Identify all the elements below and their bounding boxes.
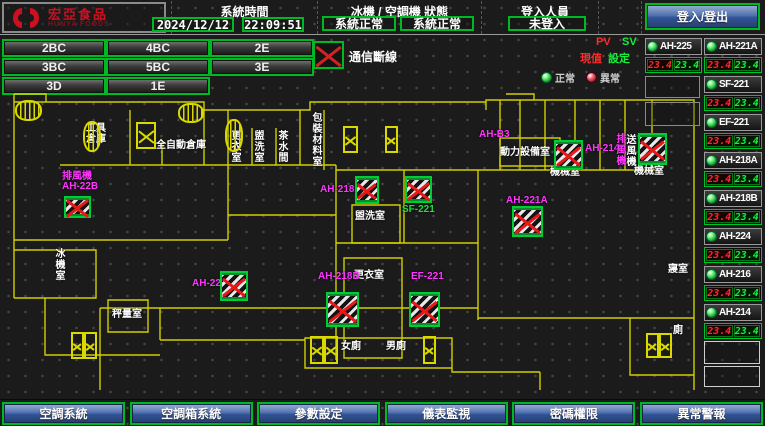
room-label: 機械室 (634, 166, 664, 177)
unit-sv-value: 23.4 (734, 287, 761, 299)
device-label-AH-218B: AH-218B (318, 272, 360, 282)
unit-status-lamp-icon (706, 307, 717, 318)
brand-name-en: HUNYA FOODS (48, 21, 110, 28)
legend-normal: 正常 (541, 70, 575, 85)
elevator-shaft-icon (646, 333, 659, 358)
unit-EF-221[interactable]: EF-221 (704, 114, 762, 131)
divider (317, 1, 318, 34)
ahu-commfail-icon-SF-221[interactable] (405, 176, 432, 203)
unit-name-label: AH-214 (719, 307, 750, 318)
floor-button-label: 4BC (108, 41, 208, 55)
floor-button-label: 1E (108, 79, 208, 93)
footer-button-密碼權限[interactable]: 密碼權限 (512, 402, 635, 425)
unit-AH-221A[interactable]: AH-221A (704, 38, 762, 55)
unit-name-label: SF-221 (719, 79, 749, 90)
device-label-AH-22B: 排風機 AH-22B (62, 172, 98, 192)
stairs-icon (15, 100, 42, 121)
divider (641, 1, 642, 34)
footer-button-label: 空調箱系統 (132, 404, 251, 423)
floor-button-3E[interactable]: 3E (210, 58, 314, 76)
unit-pv-value: 23.4 (706, 97, 733, 109)
elevator-shaft-icon (423, 336, 436, 364)
device-label-AH-221A: AH-221A (506, 196, 548, 206)
room-label: 冰機室 (53, 248, 63, 281)
unit-values-AH-224: 23.423.4 (704, 247, 762, 263)
floor-button-1E[interactable]: 1E (106, 77, 210, 95)
unit-sv-value: 23.4 (734, 59, 761, 71)
unit-name-label: AH-218A (719, 155, 757, 166)
pv-caption: 現值 (580, 50, 602, 66)
system-time-value: 22:09:51 (242, 17, 304, 32)
room-label: 廁 (673, 325, 683, 336)
room-label: 茶水間 (276, 130, 286, 163)
floor-button-label: 3D (4, 79, 104, 93)
unit-name-label: AH-224 (719, 231, 750, 242)
unit-status-lamp-icon (706, 193, 717, 204)
unit-AH-218B[interactable]: AH-218B (704, 190, 762, 207)
floor-button-label: 3BC (4, 60, 104, 74)
unit-sv-value: 23.4 (734, 325, 761, 337)
room-label: 盥洗室 (355, 211, 385, 222)
unit-SF-221[interactable]: SF-221 (704, 76, 762, 93)
unit-pv-value: 23.4 (706, 325, 733, 337)
unit-pv-value: 23.4 (706, 287, 733, 299)
divider (481, 1, 482, 34)
stairs-icon (83, 121, 101, 152)
unit-values-AH-218A: 23.423.4 (704, 171, 762, 187)
elevator-shaft-icon (324, 336, 338, 364)
footer-nav: 空調系統空調箱系統參數設定儀表監視密碼權限異常警報 (0, 399, 765, 426)
login-logout-button-label: 登入/登出 (647, 5, 758, 28)
room-label: 送風機 (624, 134, 634, 167)
unit-status-lamp-icon (647, 41, 658, 52)
footer-button-label: 密碼權限 (514, 404, 633, 423)
brand-logo: 宏亞食品 HUNYA FOODS (2, 2, 166, 33)
room-label: 盥洗室 (252, 130, 262, 163)
footer-button-label: 空調系統 (4, 404, 123, 423)
comm-fail-icon (313, 41, 344, 69)
unit-AH-216[interactable]: AH-216 (704, 266, 762, 283)
footer-button-參數設定[interactable]: 參數設定 (257, 402, 380, 425)
unit-sv-value: 23.4 (734, 97, 761, 109)
device-label-排風機: 排風機 (614, 133, 624, 166)
unit-status-lamp-icon (706, 231, 717, 242)
ahu-commfail-icon-AH-221A[interactable] (512, 206, 543, 237)
floor-button-label: 5BC (108, 60, 208, 74)
footer-button-空調箱系統[interactable]: 空調箱系統 (130, 402, 253, 425)
pv-label: PV (596, 36, 611, 48)
abnormal-lamp-icon (586, 72, 597, 83)
ahu-commfail-icon-EF-221[interactable] (409, 292, 440, 327)
unit-AH-224[interactable]: AH-224 (704, 228, 762, 245)
floor-button-label: 3E (212, 60, 312, 74)
unit-sv-value: 23.4 (734, 173, 761, 185)
unit-pv-value: 23.4 (647, 59, 673, 71)
unit-sv-value: 23.4 (674, 59, 700, 71)
unit-values-AH-221A: 23.423.4 (704, 57, 762, 73)
unit-values-SF-221: 23.423.4 (704, 95, 762, 111)
floor-button-label: 2BC (4, 41, 104, 55)
unit-name-label: AH-221A (719, 41, 757, 52)
unit-values-AH-216: 23.423.4 (704, 285, 762, 301)
unit-name-label: EF-221 (719, 117, 749, 128)
footer-button-空調系統[interactable]: 空調系統 (2, 402, 125, 425)
elevator-shaft-icon (136, 122, 156, 149)
empty-slot (704, 366, 760, 387)
legend-abnormal: 異常 (586, 70, 620, 85)
empty-slot (704, 341, 760, 364)
header-divider (0, 34, 765, 35)
unit-values-EF-221: 23.423.4 (704, 133, 762, 149)
unit-pv-value: 23.4 (706, 173, 733, 185)
room-label: 寢室 (668, 264, 688, 275)
unit-values-AH-214: 23.423.4 (704, 323, 762, 339)
ahu-commfail-icon-AH-218A[interactable] (355, 176, 379, 204)
device-label-SF-221: SF-221 (402, 205, 435, 215)
unit-sv-value: 23.4 (734, 249, 761, 261)
floor-button-2BC[interactable]: 2BC (2, 39, 106, 57)
ahu-commfail-icon-AH-22B[interactable] (64, 196, 91, 218)
room-label: 全自動倉庫 (156, 140, 206, 151)
ahu-commfail-icon-AH-214[interactable] (554, 140, 583, 170)
empty-slot (645, 102, 700, 126)
unit-pv-value: 23.4 (706, 135, 733, 147)
unit-AH-214[interactable]: AH-214 (704, 304, 762, 321)
chiller-status-value: 系統正常 (322, 16, 396, 31)
unit-sv-value: 23.4 (734, 135, 761, 147)
room-label: 男廁 (386, 341, 406, 352)
floor-button-3D[interactable]: 3D (2, 77, 106, 95)
footer-button-label: 參數設定 (259, 404, 378, 423)
elevator-shaft-icon (385, 126, 398, 153)
brand-logo-icon (10, 6, 44, 30)
brand-name: 宏亞食品 (48, 8, 110, 21)
floor-button-3BC[interactable]: 3BC (2, 58, 106, 76)
room-label: 秤量室 (112, 309, 142, 320)
unit-name-label: AH-218B (719, 193, 757, 204)
ahu-commfail-icon-AH-224[interactable] (220, 271, 248, 301)
sv-caption: 設定 (608, 50, 630, 66)
unit-pv-value: 23.4 (706, 249, 733, 261)
unit-sv-value: 23.4 (734, 211, 761, 223)
elevator-shaft-icon (71, 332, 84, 359)
floor-button-2E[interactable]: 2E (210, 39, 314, 57)
unit-status-lamp-icon (706, 269, 717, 280)
unit-AH-225[interactable]: AH-225 (645, 38, 702, 55)
elevator-shaft-icon (659, 333, 672, 358)
system-date-value: 2024/12/12 (152, 17, 234, 32)
empty-slot (645, 76, 700, 98)
divider (598, 1, 599, 34)
floor-button-4BC[interactable]: 4BC (106, 39, 210, 57)
ahu-commfail-icon-AH-218B[interactable] (326, 292, 359, 327)
ac-status-value: 系統正常 (400, 16, 474, 31)
floor-button-label: 2E (212, 41, 312, 55)
room-label: 動力設備室 (500, 147, 550, 158)
footer-button-label: 異常警報 (642, 404, 761, 423)
footer-button-異常警報[interactable]: 異常警報 (640, 402, 763, 425)
floor-button-5BC[interactable]: 5BC (106, 58, 210, 76)
room-label: 女廁 (341, 341, 361, 352)
normal-lamp-icon (541, 72, 552, 83)
login-logout-button[interactable]: 登入/登出 (645, 3, 760, 30)
room-label: 包裝材料室 (310, 112, 320, 167)
unit-status-lamp-icon (706, 79, 717, 90)
unit-name-label: AH-216 (719, 269, 750, 280)
elevator-shaft-icon (84, 332, 97, 359)
unit-status-lamp-icon (706, 117, 717, 128)
hmi-screen: 宏亞食品 HUNYA FOODS 系統時間 2024/12/12 22:09:5… (0, 0, 765, 426)
footer-button-label: 儀表監視 (387, 404, 506, 423)
footer-button-儀表監視[interactable]: 儀表監視 (385, 402, 508, 425)
sv-label: SV (622, 36, 637, 48)
unit-values-AH-225: 23.423.4 (645, 57, 702, 73)
elevator-shaft-icon (310, 336, 324, 364)
unit-name-label: AH-225 (660, 41, 691, 52)
unit-pv-value: 23.4 (706, 59, 733, 71)
unit-values-AH-218B: 23.423.4 (704, 209, 762, 225)
device-label-EF-221: EF-221 (411, 272, 444, 282)
unit-pv-value: 23.4 (706, 211, 733, 223)
device-label-AH-B3: AH-B3 (479, 130, 510, 140)
stairs-icon (178, 103, 204, 123)
unit-status-lamp-icon (706, 155, 717, 166)
stairs-icon (225, 119, 243, 152)
login-user-value: 未登入 (508, 16, 586, 31)
elevator-shaft-icon (343, 126, 358, 153)
unit-status-lamp-icon (706, 41, 717, 52)
unit-AH-218A[interactable]: AH-218A (704, 152, 762, 169)
comm-fail-label: 通信斷線 (349, 48, 397, 65)
ahu-commfail-icon-排風機[interactable] (638, 133, 667, 165)
